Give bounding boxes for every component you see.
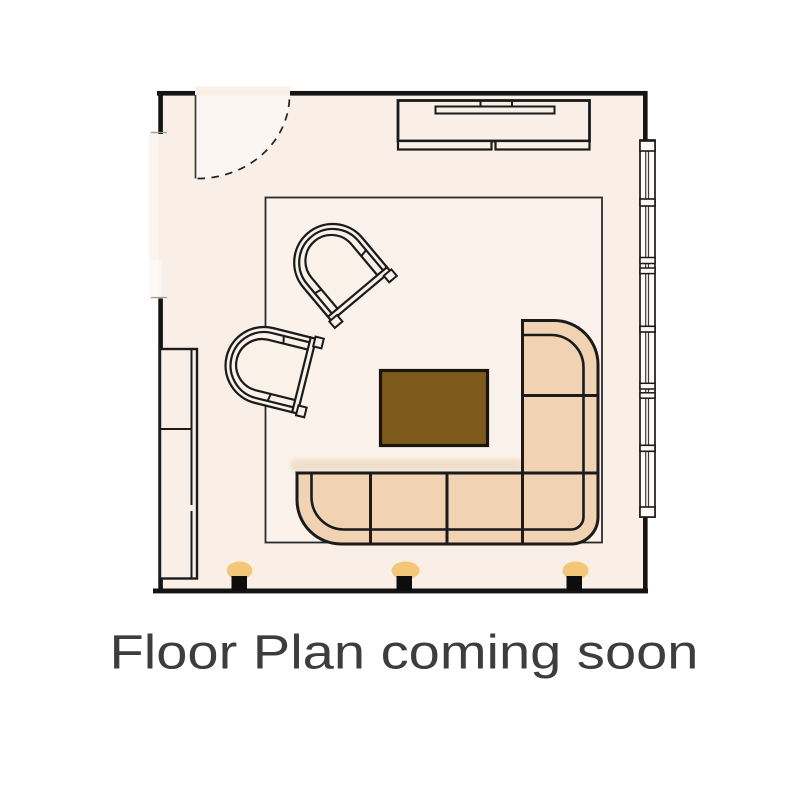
svg-text:Floor Plan coming soon: Floor Plan coming soon (110, 627, 699, 680)
